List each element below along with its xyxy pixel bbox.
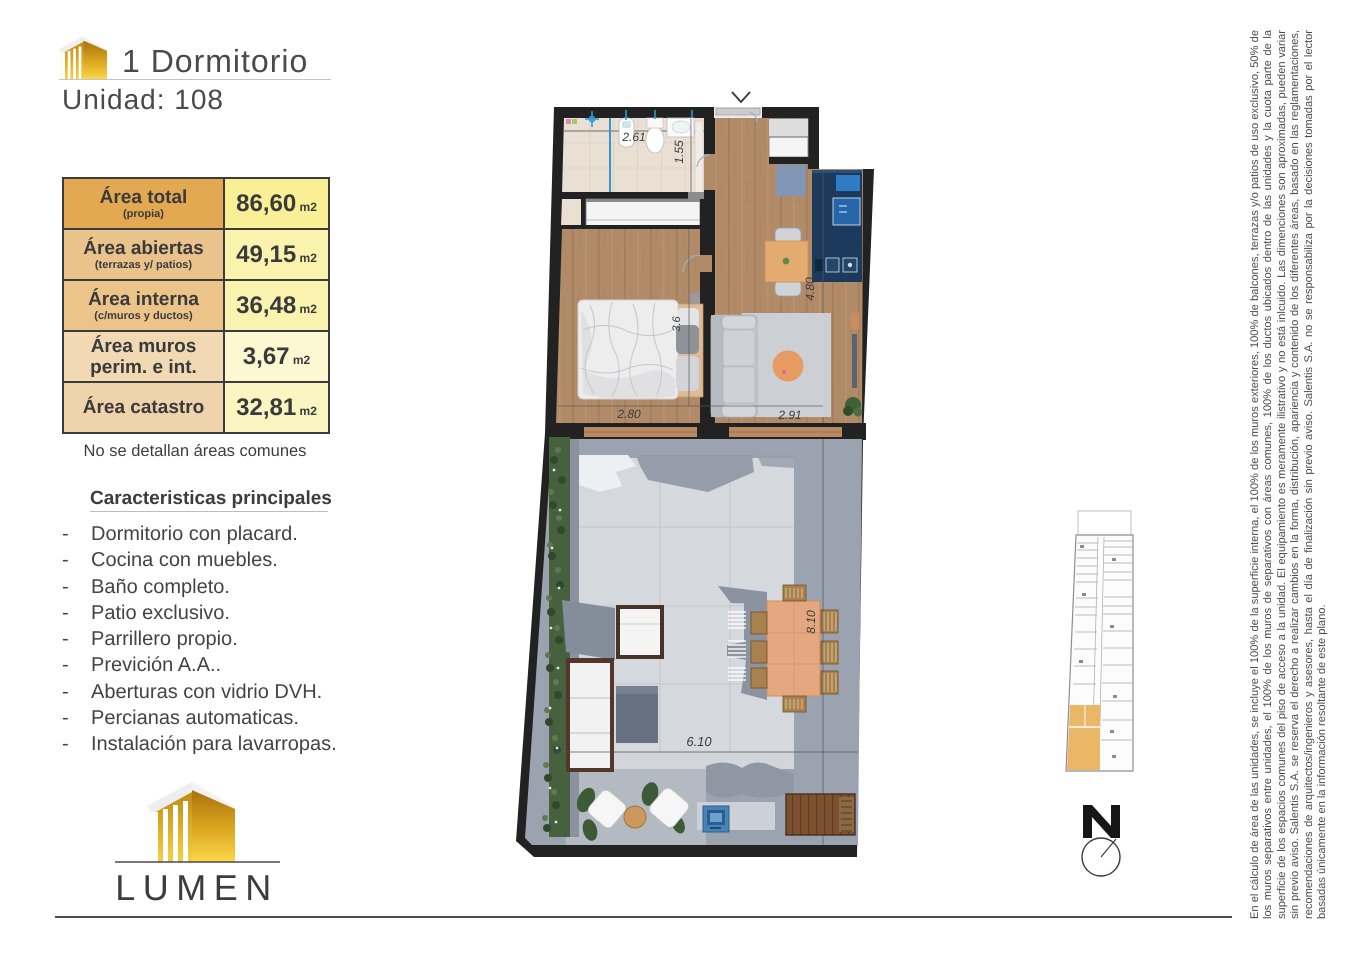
svg-text:3.6: 3.6 (671, 315, 683, 331)
svg-text:1.55: 1.55 (672, 140, 686, 164)
svg-text:2.91: 2.91 (777, 408, 801, 422)
svg-text:8.10: 8.10 (804, 610, 818, 634)
svg-text:LUMEN: LUMEN (115, 867, 279, 908)
svg-text:4.80: 4.80 (803, 277, 817, 301)
svg-text:6.10: 6.10 (686, 734, 712, 749)
svg-text:2.80: 2.80 (616, 407, 641, 421)
svg-text:2.61: 2.61 (621, 130, 645, 144)
